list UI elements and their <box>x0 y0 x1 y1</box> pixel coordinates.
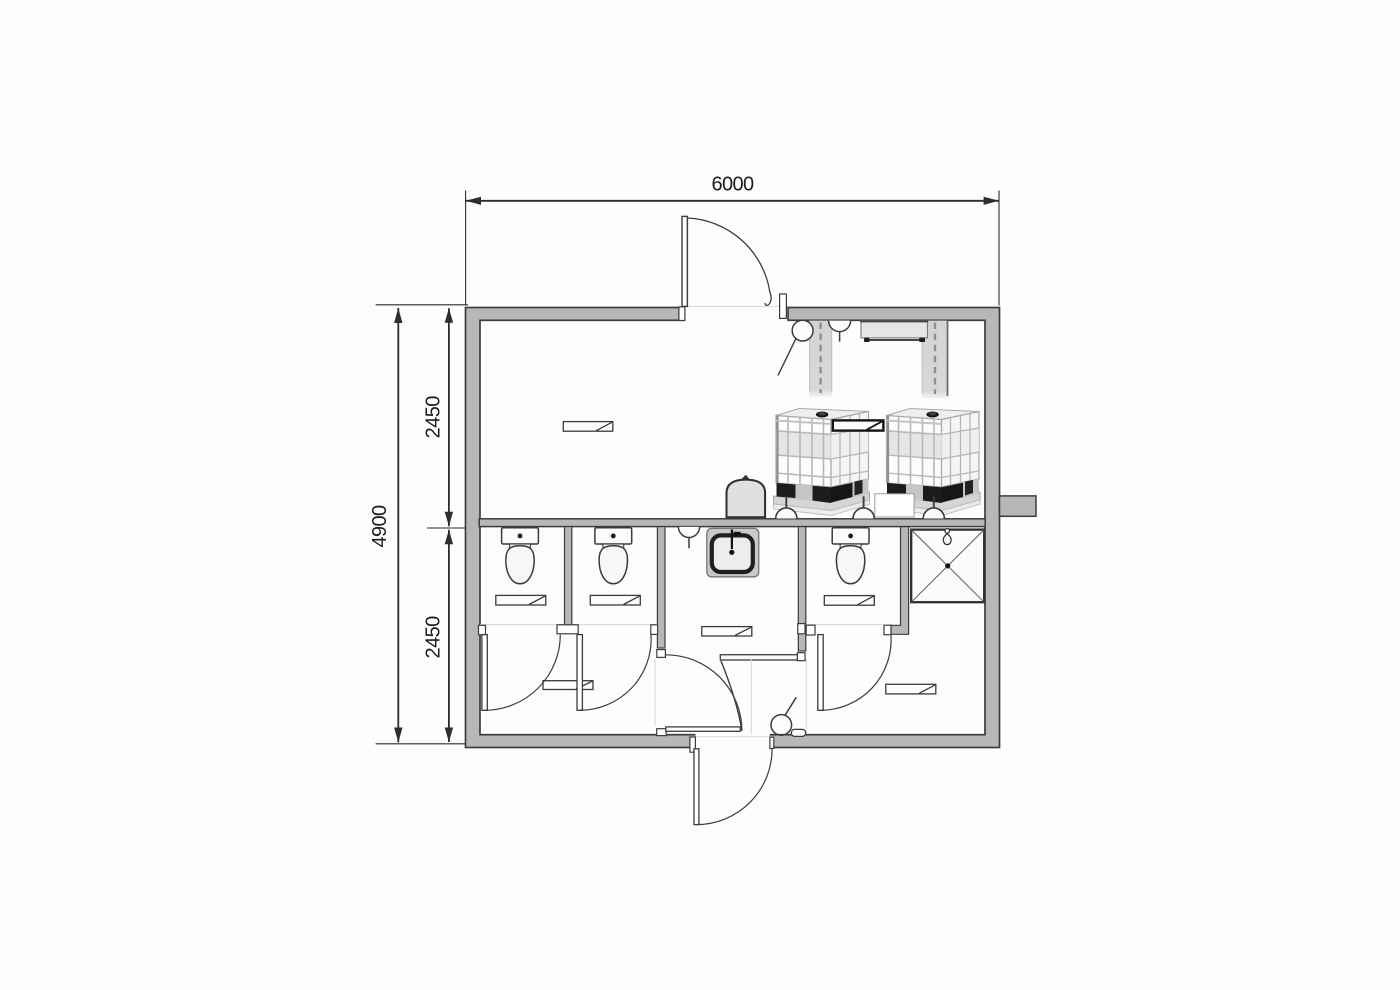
svg-text:4900: 4900 <box>369 505 391 548</box>
svg-text:2450: 2450 <box>423 396 445 439</box>
svg-text:6000: 6000 <box>711 174 754 196</box>
svg-text:2450: 2450 <box>423 616 445 659</box>
